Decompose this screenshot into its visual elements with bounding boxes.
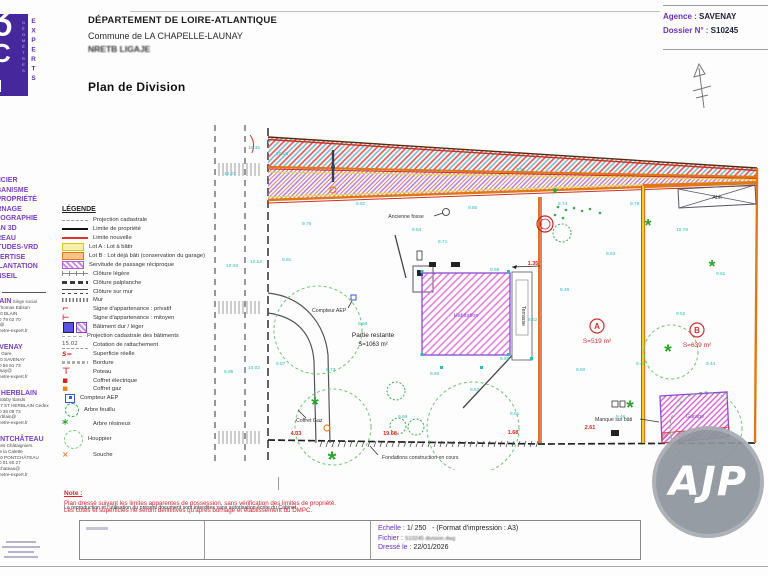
svg-text:*: * bbox=[664, 342, 672, 363]
logo-geometres-text: GÉOMÈTRES bbox=[21, 20, 26, 74]
svg-text:9.61: 9.61 bbox=[716, 271, 726, 277]
legend-item: Arbre feuillu bbox=[62, 403, 214, 418]
format-value: - (Format d'impression : A3) bbox=[432, 525, 518, 532]
legend-item: Servitude de passage réciproque bbox=[62, 260, 214, 269]
ancienne-fosse-label: Ancienne fosse bbox=[388, 214, 424, 220]
svg-text:9.64: 9.64 bbox=[412, 227, 422, 233]
partie-restante-surface: S=1063 m² bbox=[358, 342, 388, 348]
svg-text:9.87: 9.87 bbox=[276, 361, 286, 367]
legend-symbol-coffret-e: ▪ bbox=[62, 377, 88, 385]
legend-item: Mur bbox=[62, 296, 214, 305]
legend-symbol-boxyellow bbox=[62, 243, 84, 251]
legend-symbol-poteau: ⊤ bbox=[62, 368, 88, 376]
legend-symbol-lineblack bbox=[62, 228, 88, 230]
fold-mark bbox=[278, 477, 279, 490]
dresse-value: 22/01/2026 bbox=[413, 544, 448, 551]
svg-text:9.62: 9.62 bbox=[528, 317, 538, 323]
svg-text:9.95: 9.95 bbox=[224, 369, 234, 375]
svg-text:19.68: 19.68 bbox=[383, 431, 397, 437]
abri-label: Abri bbox=[712, 195, 721, 201]
svg-text:9.68: 9.68 bbox=[358, 321, 368, 327]
svg-text:9.80: 9.80 bbox=[468, 205, 478, 211]
ajp-watermark: AJP bbox=[652, 426, 764, 538]
dossier-value: S10245 bbox=[711, 26, 739, 35]
logo-mark: Ʒ bbox=[0, 14, 12, 38]
svg-text:*: * bbox=[552, 186, 558, 202]
echelle-label: Echelle : bbox=[378, 525, 405, 532]
garage-label: Garage bbox=[686, 414, 704, 420]
fichier-value: S10245 division.dwg bbox=[405, 536, 455, 542]
legend-symbol-cote: 15.02 bbox=[62, 340, 88, 349]
svg-text:*: * bbox=[709, 256, 716, 276]
servitude-band bbox=[268, 137, 757, 203]
legend-symbol-compteur bbox=[65, 394, 75, 403]
legend-item: Compteur AEP bbox=[62, 394, 214, 403]
ancienne-fosse-mark bbox=[443, 209, 450, 216]
svg-text:2.61: 2.61 bbox=[585, 425, 596, 431]
legend-item: Limite nouvelle bbox=[62, 234, 214, 243]
sidebar-service: FONCIER bbox=[0, 176, 56, 186]
agency-rule-top bbox=[663, 5, 768, 6]
dresse-label: Dressé le : bbox=[378, 544, 411, 551]
svg-text:10.08: 10.08 bbox=[226, 263, 238, 269]
commune-title: Commune de LA CHAPELLE-LAUNAY bbox=[88, 31, 243, 41]
legend-item: Clôture sur mur bbox=[62, 287, 214, 296]
svg-text:9.71: 9.71 bbox=[438, 239, 448, 245]
legend-symbol-projbldg bbox=[62, 336, 82, 337]
svg-text:9.92: 9.92 bbox=[516, 167, 526, 173]
sidebar-service: IMPLANTATION bbox=[0, 262, 56, 272]
fondations-label: Fondations construction en cours bbox=[382, 455, 459, 461]
division-plan: ******* 10.2110.3510.0810.129.9510.0210.… bbox=[210, 115, 768, 470]
sidebar-separator bbox=[2, 292, 46, 293]
legend-item: ▪Coffret électrique bbox=[62, 376, 214, 385]
legend-item: Limite de propriété bbox=[62, 225, 214, 234]
legend-symbol-linered bbox=[62, 237, 88, 239]
legend-item: S=Superficie réelle bbox=[62, 349, 214, 358]
plan-sheet: Ʒ C GÉOMÈTRES EXPERTS DÉPARTEMENT DE LOI… bbox=[0, 0, 768, 576]
agence-label: Agence : bbox=[663, 12, 697, 21]
fichier-label: Fichier : bbox=[378, 535, 403, 542]
svg-text:9.73: 9.73 bbox=[326, 367, 336, 373]
legend-item: Lot A : Lot à bâtir bbox=[62, 243, 214, 252]
svg-text:9.66: 9.66 bbox=[398, 414, 408, 420]
lot-a-surface: S=519 m² bbox=[583, 338, 612, 345]
legend-symbol-coffret-g: ▪ bbox=[62, 385, 88, 393]
legend-symbol-fence3 bbox=[62, 289, 88, 294]
legend-symbol-sup: S= bbox=[62, 350, 88, 358]
dossier-label: Dossier N° : bbox=[663, 26, 708, 35]
header-rule bbox=[130, 11, 660, 12]
svg-text:9.51: 9.51 bbox=[510, 411, 520, 417]
legend-symbol-sign-mit: ⊢ bbox=[62, 314, 88, 322]
svg-text:10.21: 10.21 bbox=[224, 171, 236, 177]
sidebar-service: URBANISME bbox=[0, 186, 56, 196]
department-title: DÉPARTEMENT DE LOIRE-ATLANTIQUE bbox=[88, 15, 277, 26]
svg-text:*: * bbox=[328, 447, 337, 470]
legend-item: ⌐Signe d'appartenance : privatif bbox=[62, 305, 214, 314]
legend-item: Lot B : Lot déjà bâti (conservation du g… bbox=[62, 252, 214, 261]
road-strip bbox=[215, 125, 260, 463]
office-block: BLAIN Siège socialrue Thomas Edison44130… bbox=[0, 298, 58, 334]
sidebar-service: BORNAGE bbox=[0, 205, 56, 215]
lieu-dit: NRETB LIGAJE bbox=[88, 44, 150, 54]
manque-sur-bati-label: Manque sur bâti bbox=[595, 417, 632, 423]
svg-text:9.60: 9.60 bbox=[430, 371, 440, 377]
legend-symbol-boxviolet bbox=[62, 261, 84, 269]
title-block-cartouche: Echelle : 1/ 250 - (Format d'impression … bbox=[79, 520, 641, 560]
logo-experts-text: EXPERTS bbox=[30, 18, 37, 85]
sidebar-service: D'ÉTUDES-VRD bbox=[0, 243, 56, 253]
sidebar-services: FONCIERURBANISMECOPROPRIÉTÉBORNAGETOPOGR… bbox=[0, 176, 56, 282]
page-title: Plan de Division bbox=[88, 80, 186, 94]
sidebar-service: EXPERTISE bbox=[0, 253, 56, 263]
legend-symbol-sign-priv: ⌐ bbox=[62, 305, 88, 313]
legend-title: LÉGENDE bbox=[62, 206, 214, 213]
legend-item: Projection cadastrale bbox=[62, 216, 214, 225]
legend-item: 15.02Cotation de rattachement bbox=[62, 340, 214, 349]
legend-symbol-mur bbox=[62, 298, 88, 302]
legend-item: Bâtiment dur / léger bbox=[62, 323, 214, 332]
svg-text:9.49: 9.49 bbox=[560, 287, 570, 293]
agence-value: SAVENAY bbox=[699, 12, 736, 21]
legend-item: Houppier bbox=[62, 430, 214, 449]
copyright-disclaimer: La reproduction et l'utilisation du prés… bbox=[64, 505, 296, 511]
svg-text:9.78: 9.78 bbox=[630, 201, 640, 207]
partie-restante-label: Partie restante bbox=[352, 332, 395, 339]
page-bottom-rule bbox=[0, 566, 768, 567]
lot-b-letter: B bbox=[694, 326, 700, 335]
cartouche-smallprint bbox=[86, 527, 108, 530]
svg-text:9.53: 9.53 bbox=[606, 251, 616, 257]
legend-symbol-souche: × bbox=[62, 451, 88, 459]
coffret-gaz-label: Coffret Gaz bbox=[296, 418, 323, 424]
office-block: PONTCHÂTEAUrue des ChâtaigniersZA de la … bbox=[0, 436, 58, 478]
sidebar-service: BUREAU bbox=[0, 234, 56, 244]
svg-text:9.82: 9.82 bbox=[356, 201, 366, 207]
legend-item: ▪Coffret gaz bbox=[62, 385, 214, 394]
legend-symbol-feuillu bbox=[65, 403, 79, 417]
sidebar-service: TOPOGRAPHIE bbox=[0, 214, 56, 224]
legend-symbol-dashgray bbox=[62, 220, 88, 221]
svg-text:9.55: 9.55 bbox=[500, 356, 510, 362]
legend-item: Clôture légère bbox=[62, 269, 214, 278]
svg-text:10.02: 10.02 bbox=[248, 365, 260, 371]
svg-text:9.91: 9.91 bbox=[282, 257, 292, 263]
svg-text:9.47: 9.47 bbox=[636, 361, 646, 367]
legend-symbol-fence2 bbox=[62, 281, 88, 284]
company-logo: Ʒ C GÉOMÈTRES bbox=[0, 14, 28, 96]
legend-item: Bordure bbox=[62, 358, 214, 367]
svg-text:4.33: 4.33 bbox=[291, 431, 302, 437]
terrasse-label: Terrasse bbox=[520, 306, 526, 326]
svg-text:9.58: 9.58 bbox=[490, 267, 500, 273]
svg-text:10.78: 10.78 bbox=[676, 227, 688, 233]
lot-b-surface: S=639 m² bbox=[683, 342, 712, 349]
svg-text:9.52: 9.52 bbox=[676, 311, 686, 317]
note-label: Note : bbox=[64, 490, 82, 497]
compteur-aep-label: Compteur AEP bbox=[312, 308, 347, 314]
sidebar-smallprint bbox=[0, 538, 40, 561]
svg-text:9.57: 9.57 bbox=[470, 387, 480, 393]
agency-rule-bottom bbox=[663, 49, 768, 50]
legend-symbol-resineux: * bbox=[62, 420, 88, 428]
svg-text:1.35: 1.35 bbox=[528, 261, 539, 267]
svg-text:10.18: 10.18 bbox=[276, 151, 288, 157]
legend-symbol-bordure bbox=[62, 361, 88, 364]
svg-text:*: * bbox=[645, 215, 652, 235]
svg-text:*: * bbox=[311, 395, 319, 416]
svg-text:9.44: 9.44 bbox=[706, 361, 716, 367]
legend-item: *Arbre résineux bbox=[62, 418, 214, 430]
habitation-label: Habitation bbox=[454, 313, 479, 319]
sidebar-offices: BLAIN Siège socialrue Thomas Edison44130… bbox=[0, 298, 58, 488]
legend-symbol-houppier bbox=[64, 430, 83, 449]
svg-text:9.74: 9.74 bbox=[558, 201, 568, 207]
north-arrow bbox=[686, 60, 726, 115]
svg-text:1.68: 1.68 bbox=[508, 430, 519, 436]
svg-text:10.12: 10.12 bbox=[250, 259, 262, 265]
svg-text:9.50: 9.50 bbox=[576, 367, 586, 373]
cartouche-info: Echelle : 1/ 250 - (Format d'impression … bbox=[378, 524, 518, 553]
legend-item: ⊤Poteau bbox=[62, 367, 214, 376]
legend-item: Clôture palplanche bbox=[62, 278, 214, 287]
legend-panel: LÉGENDE Projection cadastraleLimite de p… bbox=[62, 206, 214, 461]
office-block: ST HERBLAINrue Bobby Sands44817 ST HERBL… bbox=[0, 390, 58, 426]
lot-a-letter: A bbox=[594, 322, 600, 331]
sidebar-service: SCAN 3D bbox=[0, 224, 56, 234]
legend-symbol-fence1 bbox=[62, 271, 88, 276]
sidebar-service: CONSEIL bbox=[0, 272, 56, 282]
legend-item: ×Souche bbox=[62, 449, 214, 461]
echelle-value: 1/ 250 bbox=[407, 525, 426, 532]
sidebar-service: COPROPRIÉTÉ bbox=[0, 195, 56, 205]
office-block: SAVENAYde la Gare44260 SAVENAY02 40 56 9… bbox=[0, 344, 58, 380]
svg-text:10.35: 10.35 bbox=[248, 145, 260, 151]
agency-block: Agence : SAVENAY Dossier N° : S10245 bbox=[663, 10, 768, 38]
legend-symbol-boxorange bbox=[62, 252, 84, 260]
svg-text:9.76: 9.76 bbox=[302, 221, 312, 227]
